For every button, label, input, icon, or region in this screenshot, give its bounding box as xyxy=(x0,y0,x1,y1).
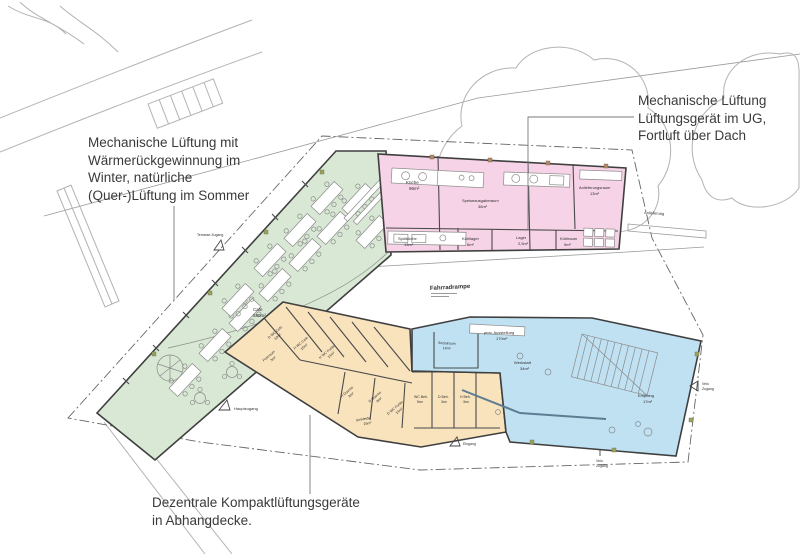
velo-entry-label-1: Velo xyxy=(702,382,709,386)
annotation-top-right-line1: Mechanische Lüftung xyxy=(638,92,766,110)
annotation-bottom-line2: in Abhangdecke. xyxy=(152,512,360,530)
velo-entry-label-2: Zugang xyxy=(702,387,714,391)
column xyxy=(695,352,699,356)
velo-bottom-label-2: Zugang xyxy=(596,464,608,468)
column xyxy=(320,170,324,174)
delivery-area: Anlieferung xyxy=(628,210,706,238)
annotation-top-right: Mechanische Lüftung Lüftungsgerät im UG,… xyxy=(638,92,766,145)
floor-plan-page: Fahrradrampe xyxy=(0,0,800,554)
h-beh-area: 3m² xyxy=(463,400,470,404)
anlieferungsraum-area: 13m² xyxy=(590,191,600,196)
annotation-left-line3: Winter, natürliche xyxy=(88,169,249,187)
annotation-left-line2: Wärmerückgewinnung im xyxy=(88,152,249,170)
serving-counter xyxy=(504,172,570,187)
mid-entry-label: Eingang xyxy=(463,442,476,446)
lager-label: Lager xyxy=(516,235,527,240)
ramp-subtext-line xyxy=(431,293,457,294)
delivery-shelf xyxy=(580,170,622,180)
ausstellung-label: prov. Ausstellung xyxy=(484,330,514,335)
anlieferungsraum-label: Anlieferungsraum xyxy=(579,185,611,190)
zone-pink-kitchen: Küche 96m² Speiseausgaberaum 36m² Anlief… xyxy=(378,154,626,252)
annotation-bottom-line1: Dezentrale Kompaktlüftungsgeräte xyxy=(152,494,360,512)
kuehllager-label: Kühllager xyxy=(462,236,480,241)
cafe-name-label: Cafe xyxy=(253,307,263,312)
crosswalk-hatch xyxy=(148,79,223,128)
fahrradrampe-label: Fahrradrampe xyxy=(430,284,471,292)
empfang-label: Empfang xyxy=(638,393,654,398)
annotation-left-line1: Mechanische Lüftung mit xyxy=(88,134,249,152)
lager-area: 2,5m² xyxy=(518,241,529,246)
spuelkueche-area: 13m² xyxy=(404,242,414,247)
annotation-top-right-line2: Lüftungsgerät im UG, xyxy=(638,110,766,128)
speiseausgabe-label: Speiseausgaberaum xyxy=(462,198,499,203)
d-beh-area: 3m² xyxy=(441,400,448,404)
anlieferung-label: Anlieferung xyxy=(644,210,664,216)
column xyxy=(689,418,693,422)
site-plan-svg: Fahrradrampe xyxy=(0,0,800,554)
kueche-label: Küche xyxy=(406,180,419,185)
column xyxy=(546,161,550,165)
column xyxy=(430,155,434,159)
speiseausgabe-area: 36m² xyxy=(478,204,488,209)
kueche-area: 96m² xyxy=(409,186,420,191)
velo-bottom-label-1: Velo xyxy=(596,459,603,463)
werkstatt-label: Werkstatt xyxy=(514,360,532,365)
annotation-top-right-line3: Fortluft über Dach xyxy=(638,127,766,145)
column xyxy=(208,291,212,295)
empfang-area: 17m² xyxy=(643,399,653,404)
wc-beh-area: 5m² xyxy=(417,400,424,404)
terrace-entry-label: Terrasse Zugang xyxy=(197,233,223,237)
column xyxy=(604,164,608,168)
main-entry-label: Hauptzugang xyxy=(234,406,258,411)
ausstellung-area: 170m² xyxy=(496,336,508,341)
sozialraum-area: 14m² xyxy=(443,346,452,350)
column xyxy=(152,352,156,356)
annotation-left-line4: (Quer-)Lüftung im Sommer xyxy=(88,187,249,205)
wc-beh-label: WC Beh. xyxy=(414,395,428,399)
kuehlraum-area: 9m² xyxy=(564,242,572,247)
h-beh-label: H Beh. xyxy=(460,395,471,399)
annotation-bottom: Dezentrale Kompaktlüftungsgeräte in Abha… xyxy=(152,494,360,529)
column xyxy=(264,230,268,234)
annotation-left: Mechanische Lüftung mit Wärmerückgewinnu… xyxy=(88,134,249,204)
werkstatt-area: 34m² xyxy=(520,366,530,371)
kuehllager-area: 6m² xyxy=(467,242,475,247)
column xyxy=(530,440,534,444)
d-beh-label: D Beh. xyxy=(438,395,449,399)
ramp-subtext-line xyxy=(431,296,449,297)
kuehlraum-label: Kühlraum xyxy=(560,236,578,241)
spuelkueche-label: Spülküche xyxy=(398,236,417,241)
column xyxy=(488,158,492,162)
column xyxy=(612,448,616,452)
terrace-entry-triangle xyxy=(214,240,224,250)
tree-branches xyxy=(8,2,118,52)
site-context-lines xyxy=(0,2,800,554)
